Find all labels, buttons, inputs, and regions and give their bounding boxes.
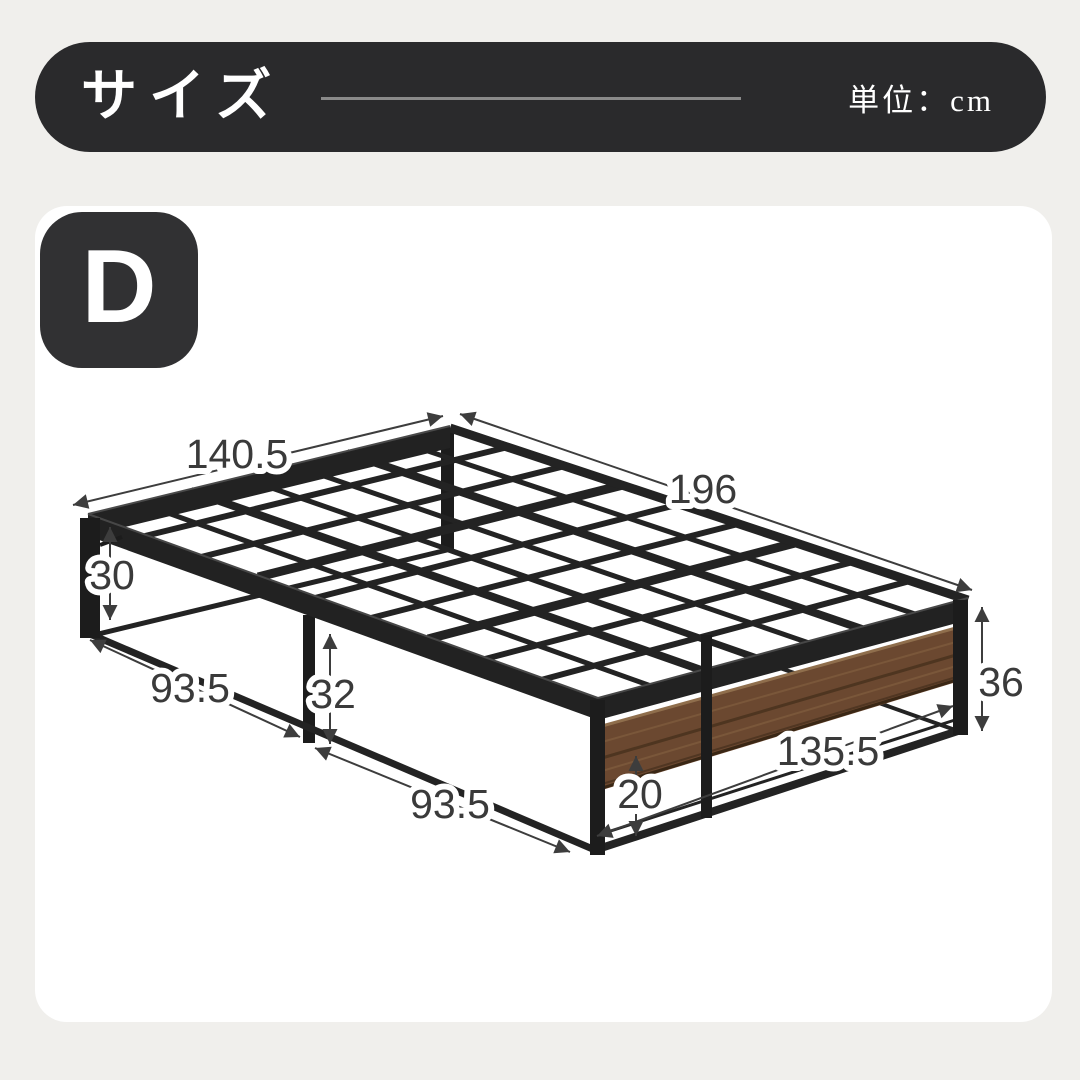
size-type-letter: D (81, 235, 156, 339)
unit-label: 単位：cm (848, 75, 994, 120)
header-divider (321, 97, 741, 100)
page-title: サイズ (81, 69, 283, 125)
size-type-badge: D (40, 212, 198, 368)
header-banner: サイズ 単位：cm (35, 42, 1046, 152)
size-infographic-page: { "header": { "title": "サイズ", "unit_labe… (0, 0, 1080, 1080)
